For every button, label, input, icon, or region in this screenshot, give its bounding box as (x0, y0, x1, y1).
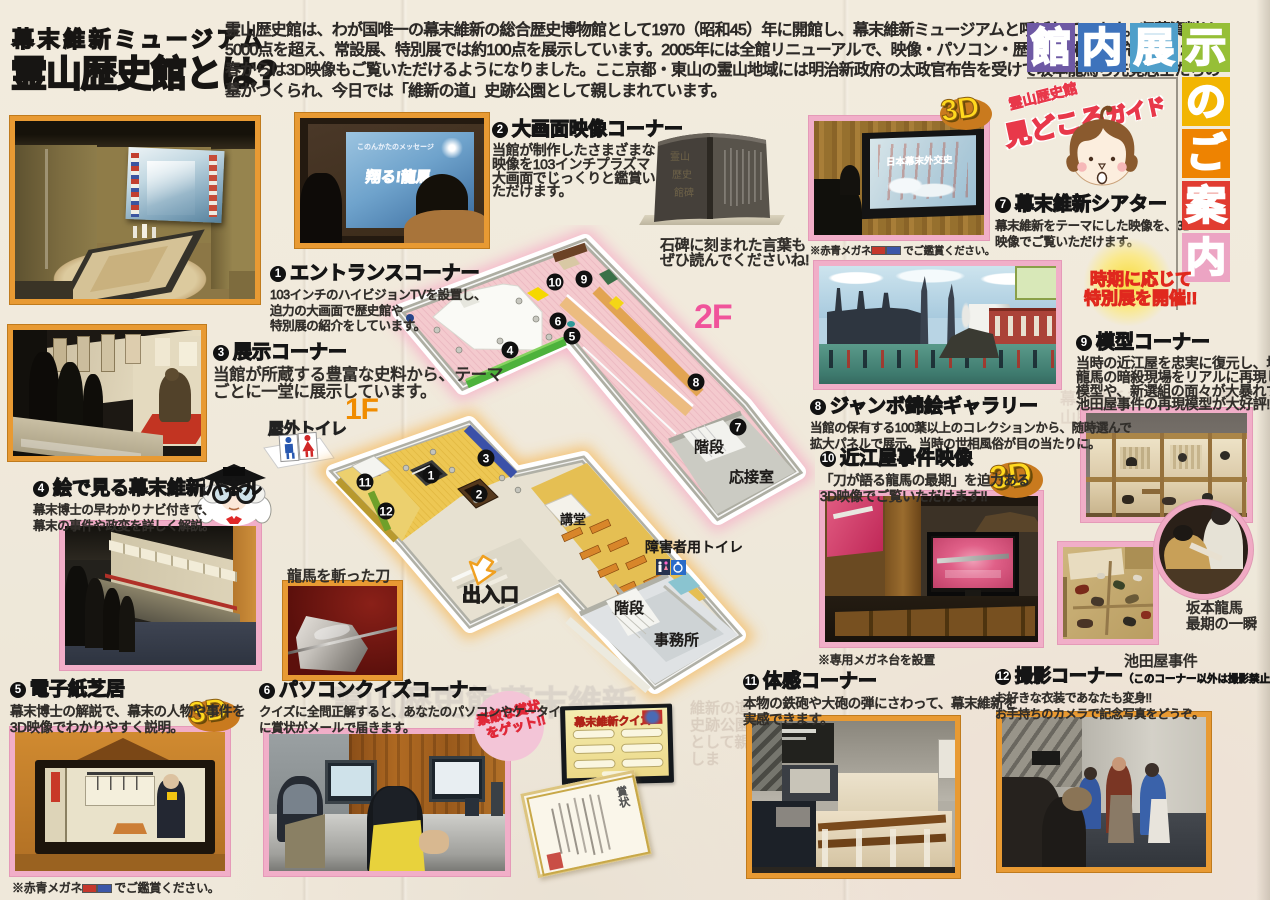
svg-text:4: 4 (507, 344, 514, 358)
svg-text:3D: 3D (939, 90, 982, 128)
svg-text:応接室: 応接室 (729, 469, 774, 486)
svg-text:5: 5 (569, 330, 576, 344)
svg-text:3: 3 (483, 452, 490, 466)
svg-text:2F: 2F (694, 298, 732, 336)
svg-text:障害者用トイレ: 障害者用トイレ (645, 539, 743, 555)
svg-text:事務所: 事務所 (654, 632, 699, 649)
svg-text:階段: 階段 (614, 600, 644, 617)
svg-text:7: 7 (735, 421, 742, 435)
svg-text:6: 6 (555, 315, 562, 329)
svg-text:10: 10 (548, 276, 562, 290)
svg-text:出入口: 出入口 (462, 583, 519, 606)
svg-text:11: 11 (359, 476, 372, 490)
svg-text:8: 8 (693, 376, 700, 390)
svg-text:9: 9 (581, 273, 588, 287)
svg-text:1: 1 (428, 469, 435, 483)
svg-text:2: 2 (476, 488, 483, 502)
svg-text:階段: 階段 (694, 439, 724, 456)
svg-text:12: 12 (379, 505, 393, 519)
svg-text:講堂: 講堂 (560, 512, 586, 527)
